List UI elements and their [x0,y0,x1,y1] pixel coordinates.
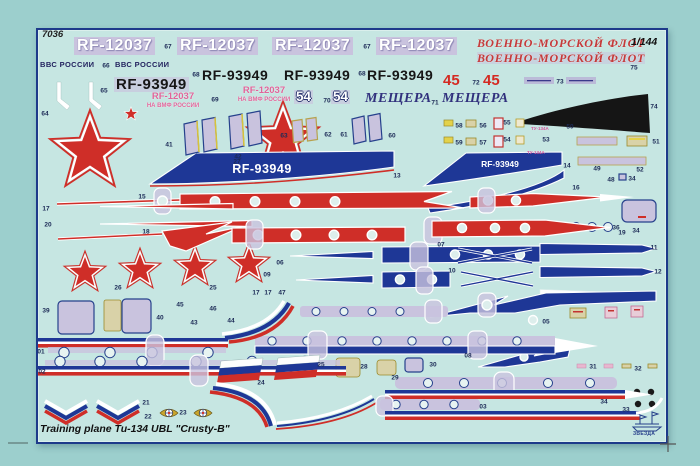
meshchera-name-decal: МЕЩЕРА [442,92,509,106]
part-number: 61 [340,132,347,139]
part-number: 07 [437,242,444,249]
registration-decal-rf93949: RF-93949 [367,68,433,82]
part-number: 01 [37,349,44,356]
part-number: 62 [324,132,331,139]
part-number: 17 [252,290,259,297]
part-number: 60 [388,133,395,140]
part-number: 73 [556,79,563,86]
part-number: 68 [358,71,365,78]
decal-sheet-scan: RF-93949 RF-93949 [0,0,700,466]
part-number: 23 [179,410,186,417]
navmf-line2: НА ВМФ РОССИИ [228,97,300,103]
part-number: 09 [263,272,270,279]
part-number: 52 [636,167,643,174]
walkway-mark-decals [57,82,102,110]
fin-registration: RF-93949 [481,159,519,169]
board-number-45-decal: 45 [483,73,500,88]
registration-decal-rf12037: RF-12037 [177,37,258,55]
part-number: 25 [317,362,324,369]
registration-decal-rf93949: RF-93949 [284,68,350,82]
registration-decal-rf12037: RF-12037 [74,37,155,55]
part-number: 27 [233,159,240,166]
part-number: 49 [593,166,600,173]
part-number: 25 [209,285,216,292]
part-number: 59 [455,140,462,147]
part-number: 58 [455,123,462,130]
part-number: 40 [156,315,163,322]
scale-marking: 1/144 [631,37,657,48]
part-number: 18 [142,229,149,236]
brand-name: ЗВЕЗДА [633,432,655,437]
tu134-stencil: ТУ-134А [531,126,550,131]
part-number: 06 [276,260,283,267]
registration-decal-rf12037: RF-12037 [376,37,457,55]
part-number: 22 [144,414,151,421]
part-number: 05 [542,319,549,326]
part-number: 39 [42,308,49,315]
part-number: 50 [566,124,573,131]
part-number: 34 [632,228,639,235]
meshchera-name-decal: МЕЩЕРА [365,92,432,106]
part-number: 67 [363,44,370,51]
part-number: 45 [176,302,183,309]
navmf-title-decal: RF-12037 НА ВМФ РОССИИ [228,86,300,103]
part-number: 20 [44,222,51,229]
part-number: 48 [607,177,614,184]
part-number: 67 [164,44,171,51]
part-number: 44 [227,318,234,325]
part-number: 26 [114,285,121,292]
part-number: 17 [264,290,271,297]
chevron-decal [45,401,87,423]
part-number: 72 [472,80,479,87]
part-number: 74 [650,104,657,111]
part-number: 41 [165,142,172,149]
part-number: 31 [589,364,596,371]
part-number: 21 [142,400,149,407]
fin-registration: RF-93949 [232,162,292,176]
navmf-line2: НА ВМФ РОССИИ [133,103,213,109]
board-number-45-decal: 45 [443,73,460,88]
part-number: 13 [393,173,400,180]
registration-cross-mark [660,436,676,452]
fleet-title-decal: ВОЕННО-МОРСКОЙ ФЛОТ [477,37,645,49]
part-number: 68 [192,72,199,79]
part-number: 02 [38,369,45,376]
part-number: 17 [42,206,49,213]
part-number: 32 [634,366,641,373]
board-number-54-decal: 54 [294,90,313,104]
fleet-title-decal: ВОЕННО-МОРСКОЙ ФЛОТ [477,52,645,64]
part-number: 14 [563,163,570,170]
part-number: 56 [479,123,486,130]
part-number: 71 [431,100,438,107]
part-number: 65 [100,88,107,95]
part-number: 43 [190,320,197,327]
product-code: 7036 [42,30,63,40]
part-number: 47 [278,290,285,297]
part-number: 64 [41,111,48,118]
vvs-rossii-decal: ВВС РОССИИ [40,61,94,69]
part-number: 55 [503,120,510,127]
part-number: 53 [542,137,549,144]
part-number: 75 [630,65,637,72]
part-number: 29 [391,375,398,382]
part-number: 63 [280,133,287,140]
navmf-title-decal: RF-12037 НА ВМФ РОССИИ [133,92,213,109]
part-number: 69 [211,97,218,104]
part-number: 16 [572,185,579,192]
part-number: 19 [618,230,625,237]
tu134-stencil: ТУ-134А [527,150,546,155]
part-number: 10 [448,268,455,275]
part-number: 24 [257,380,264,387]
part-number: 57 [479,140,486,147]
navmf-line1: RF-12037 [133,92,213,102]
part-number: 46 [209,306,216,313]
part-number: 08 [464,353,471,360]
part-number: 30 [429,362,436,369]
flag-decal [274,355,320,380]
part-number: 33 [622,407,629,414]
navmf-line1: RF-12037 [228,86,300,96]
part-number: 34 [600,399,607,406]
part-number: 12 [654,269,661,276]
part-number: 66 [102,63,109,70]
vvs-rossii-decal: ВВС РОССИИ [115,61,169,69]
registration-decal-rf93949: RF-93949 [202,68,268,82]
part-number: 03 [479,404,486,411]
board-number-54-decal: 54 [331,90,350,104]
part-number: 54 [503,137,510,144]
blue-stripe-decals [255,242,656,367]
part-number: 51 [652,139,659,146]
sheet-title: Training plane Tu-134 UBL "Crusty-B" [40,424,230,435]
registration-decal-rf12037: RF-12037 [272,37,353,55]
part-number: 34 [628,176,635,183]
part-number: 70 [323,98,330,105]
part-number: 15 [138,194,145,201]
flag-decal [217,358,263,383]
part-number: 28 [360,364,367,371]
registration-decal-rf93949: RF-93949 [114,77,189,92]
part-number: 11 [651,245,658,252]
chevron-decal [97,401,139,423]
